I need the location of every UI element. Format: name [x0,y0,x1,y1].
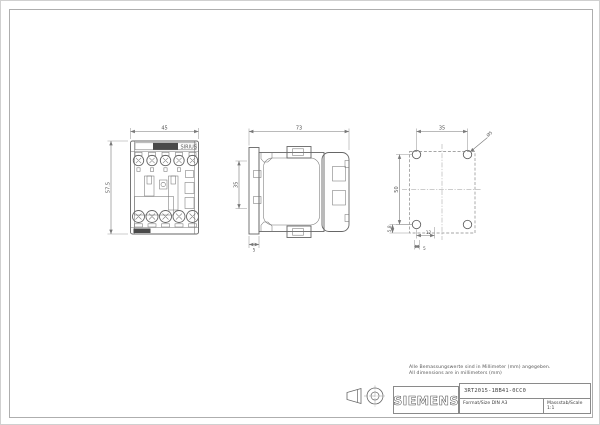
side-rail-dim: 35 [233,182,239,188]
hole-v-spacing-dim: 50 [394,186,400,192]
brand-label: SIRIUS [181,145,197,151]
front-view-middle-details [135,171,195,216]
front-view: SIRIUS [105,126,198,234]
hole-pattern-view: 35 Ø5 50 5.8 12 5 [387,126,494,252]
foot-offset-dim: 12 [426,230,432,236]
hole-pattern-dimensions: 35 Ø5 50 5.8 12 5 [387,126,494,252]
side-view: 73 35 5 [233,126,349,254]
terminal-screws-top [133,152,197,171]
note-line-de: Alle Bemassungswerte sind in Millimeter … [409,365,551,371]
front-height-dim: 57.5 [105,182,111,193]
front-width-dim: 45 [161,126,167,132]
siemens-logo: SIEMENS [394,393,458,408]
front-view-top-label-strip: SIRIUS [135,143,197,151]
hole-h-spacing-dim: 35 [439,126,445,132]
mounting-hole [412,220,420,228]
format-cell: Format/Size DIN A3 [460,399,544,414]
drawing-sheet: SIRIUS [0,0,600,425]
side-depth-dim: 73 [296,126,302,132]
mounting-hole [463,220,471,228]
title-block: 3RT2015-1BB41-0CC0 Format/Size DIN A3 Ma… [459,383,591,414]
first-angle-projection-icon [343,384,391,408]
note-line-en: All dimensions are in millimeters (mm) [409,371,551,377]
edge-offset-dim: 5.8 [387,225,393,232]
dimension-drawing: SIRIUS [1,1,600,425]
part-number: 3RT2015-1BB41-0CC0 [460,384,590,399]
scale-cell: Massstab/Scale 1:1 [544,399,590,414]
hole-pattern-outline [402,144,482,240]
side-plate-dim: 5 [253,248,256,254]
dimension-notes: Alle Bemassungswerte sind in Millimeter … [409,365,551,376]
side-view-outline [249,147,349,238]
hole-diameter-dim: Ø5 [485,129,494,138]
foot-width-dim: 5 [423,246,426,252]
siemens-logo-box: SIEMENS [393,386,459,414]
terminal-screws-bottom [133,211,199,234]
